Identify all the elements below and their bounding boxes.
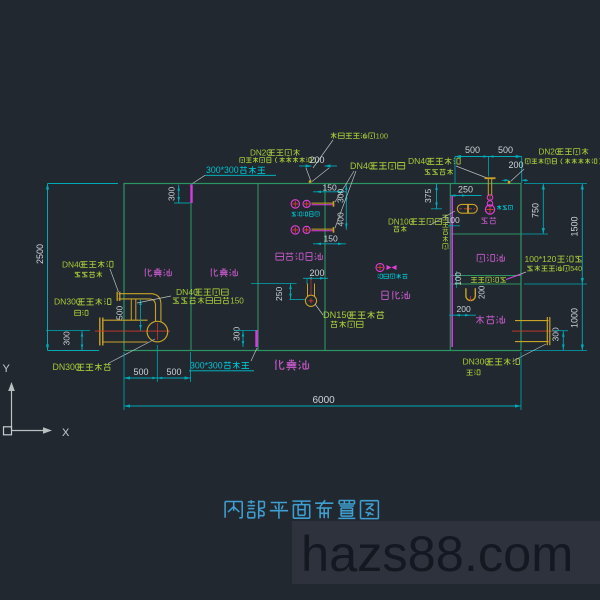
svg-text:DN150: DN150 [323, 310, 352, 320]
svg-text:750: 750 [531, 203, 541, 218]
svg-text:100: 100 [376, 131, 388, 140]
svg-text:500: 500 [498, 145, 513, 155]
svg-text:200: 200 [509, 160, 524, 170]
svg-text:400: 400 [336, 212, 346, 226]
svg-text:2500: 2500 [35, 244, 45, 264]
svg-text:500: 500 [134, 367, 149, 377]
svg-text:500: 500 [465, 145, 480, 155]
svg-text:DN20: DN20 [539, 147, 560, 156]
svg-text:200: 200 [457, 304, 471, 314]
svg-text:DN40: DN40 [350, 161, 373, 171]
svg-text:DN40: DN40 [408, 156, 430, 166]
svg-text:1000: 1000 [570, 308, 580, 328]
svg-text:100: 100 [454, 272, 463, 286]
svg-text:300: 300 [232, 327, 242, 341]
svg-text:X: X [62, 427, 70, 439]
svg-text:DN40: DN40 [176, 287, 198, 297]
svg-text:DN300: DN300 [54, 297, 81, 307]
svg-text:300: 300 [167, 187, 177, 201]
svg-text:1500: 1500 [570, 216, 580, 236]
svg-text:150: 150 [230, 296, 244, 305]
svg-text:375: 375 [423, 189, 433, 203]
svg-text:200: 200 [310, 155, 325, 165]
svg-text:300: 300 [62, 331, 72, 345]
svg-text:300: 300 [336, 189, 346, 203]
svg-text:540: 540 [570, 265, 582, 273]
svg-text:150: 150 [324, 233, 338, 243]
svg-text:DN300: DN300 [53, 362, 80, 372]
svg-text:250: 250 [274, 287, 284, 301]
svg-text:6000: 6000 [313, 395, 336, 406]
svg-text:300: 300 [551, 327, 561, 341]
svg-text:100*120: 100*120 [525, 254, 557, 264]
svg-text:DN20: DN20 [250, 148, 271, 157]
svg-text:Y: Y [3, 363, 11, 375]
svg-text:500: 500 [115, 306, 125, 320]
svg-text:300*300: 300*300 [190, 360, 223, 370]
svg-text:DN100: DN100 [388, 217, 414, 226]
svg-text:300*300: 300*300 [206, 165, 239, 175]
svg-text:500: 500 [167, 367, 182, 377]
svg-text:200: 200 [478, 285, 487, 299]
svg-text:hazs88.com: hazs88.com [301, 525, 573, 582]
svg-text:DN300: DN300 [463, 357, 490, 367]
svg-text:200: 200 [310, 268, 325, 278]
svg-text:250: 250 [458, 184, 473, 194]
